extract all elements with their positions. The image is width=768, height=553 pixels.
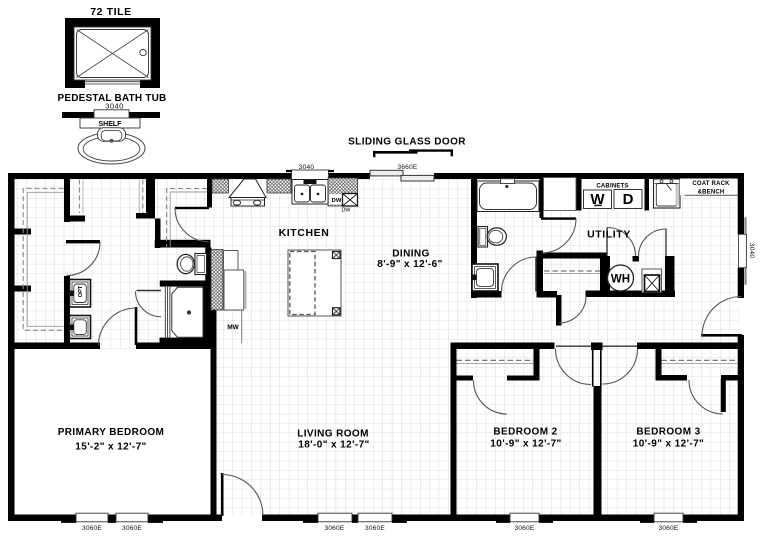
svg-text:D: D	[623, 191, 634, 208]
svg-text:WH: WH	[611, 273, 630, 285]
svg-text:3060E: 3060E	[658, 525, 678, 532]
svg-text:SHELF: SHELF	[99, 121, 123, 128]
svg-text:KITCHEN: KITCHEN	[279, 227, 330, 239]
svg-text:BEDROOM 2: BEDROOM 2	[493, 427, 557, 438]
svg-text:3040: 3040	[299, 164, 315, 171]
svg-text:3060E: 3060E	[82, 525, 102, 532]
svg-text:3060E: 3060E	[514, 525, 534, 532]
svg-text:72 TILE: 72 TILE	[90, 6, 132, 18]
svg-text:3660E: 3660E	[397, 164, 417, 171]
svg-text:3060E: 3060E	[324, 525, 344, 532]
svg-text:3040: 3040	[105, 102, 124, 111]
svg-text:3060E: 3060E	[365, 525, 385, 532]
svg-text:10'-9" x 12'-7": 10'-9" x 12'-7"	[633, 439, 704, 450]
svg-text:&BENCH: &BENCH	[698, 190, 725, 196]
svg-text:DW: DW	[342, 208, 352, 214]
svg-text:8'-9" x 12'-6": 8'-9" x 12'-6"	[377, 259, 442, 270]
svg-text:3060E: 3060E	[122, 525, 142, 532]
svg-text:CABINETS: CABINETS	[596, 184, 628, 190]
svg-text:COAT RACK: COAT RACK	[692, 181, 730, 187]
svg-text:18'-0" x 12'-7": 18'-0" x 12'-7"	[298, 439, 369, 450]
svg-text:15'-2" x 12'-7": 15'-2" x 12'-7"	[75, 442, 146, 453]
svg-text:BEDROOM 3: BEDROOM 3	[636, 427, 700, 438]
svg-text:DW: DW	[332, 198, 342, 204]
svg-text:10'-9" x 12'-7": 10'-9" x 12'-7"	[490, 439, 561, 450]
svg-text:UTILITY: UTILITY	[587, 229, 631, 241]
svg-text:PRIMARY BEDROOM: PRIMARY BEDROOM	[58, 427, 165, 438]
svg-text:SLIDING GLASS DOOR: SLIDING GLASS DOOR	[348, 137, 466, 148]
svg-text:3040: 3040	[748, 243, 755, 259]
svg-text:OPT: OPT	[78, 285, 84, 297]
svg-text:MW: MW	[227, 324, 239, 331]
svg-text:LIVING ROOM: LIVING ROOM	[297, 428, 369, 439]
